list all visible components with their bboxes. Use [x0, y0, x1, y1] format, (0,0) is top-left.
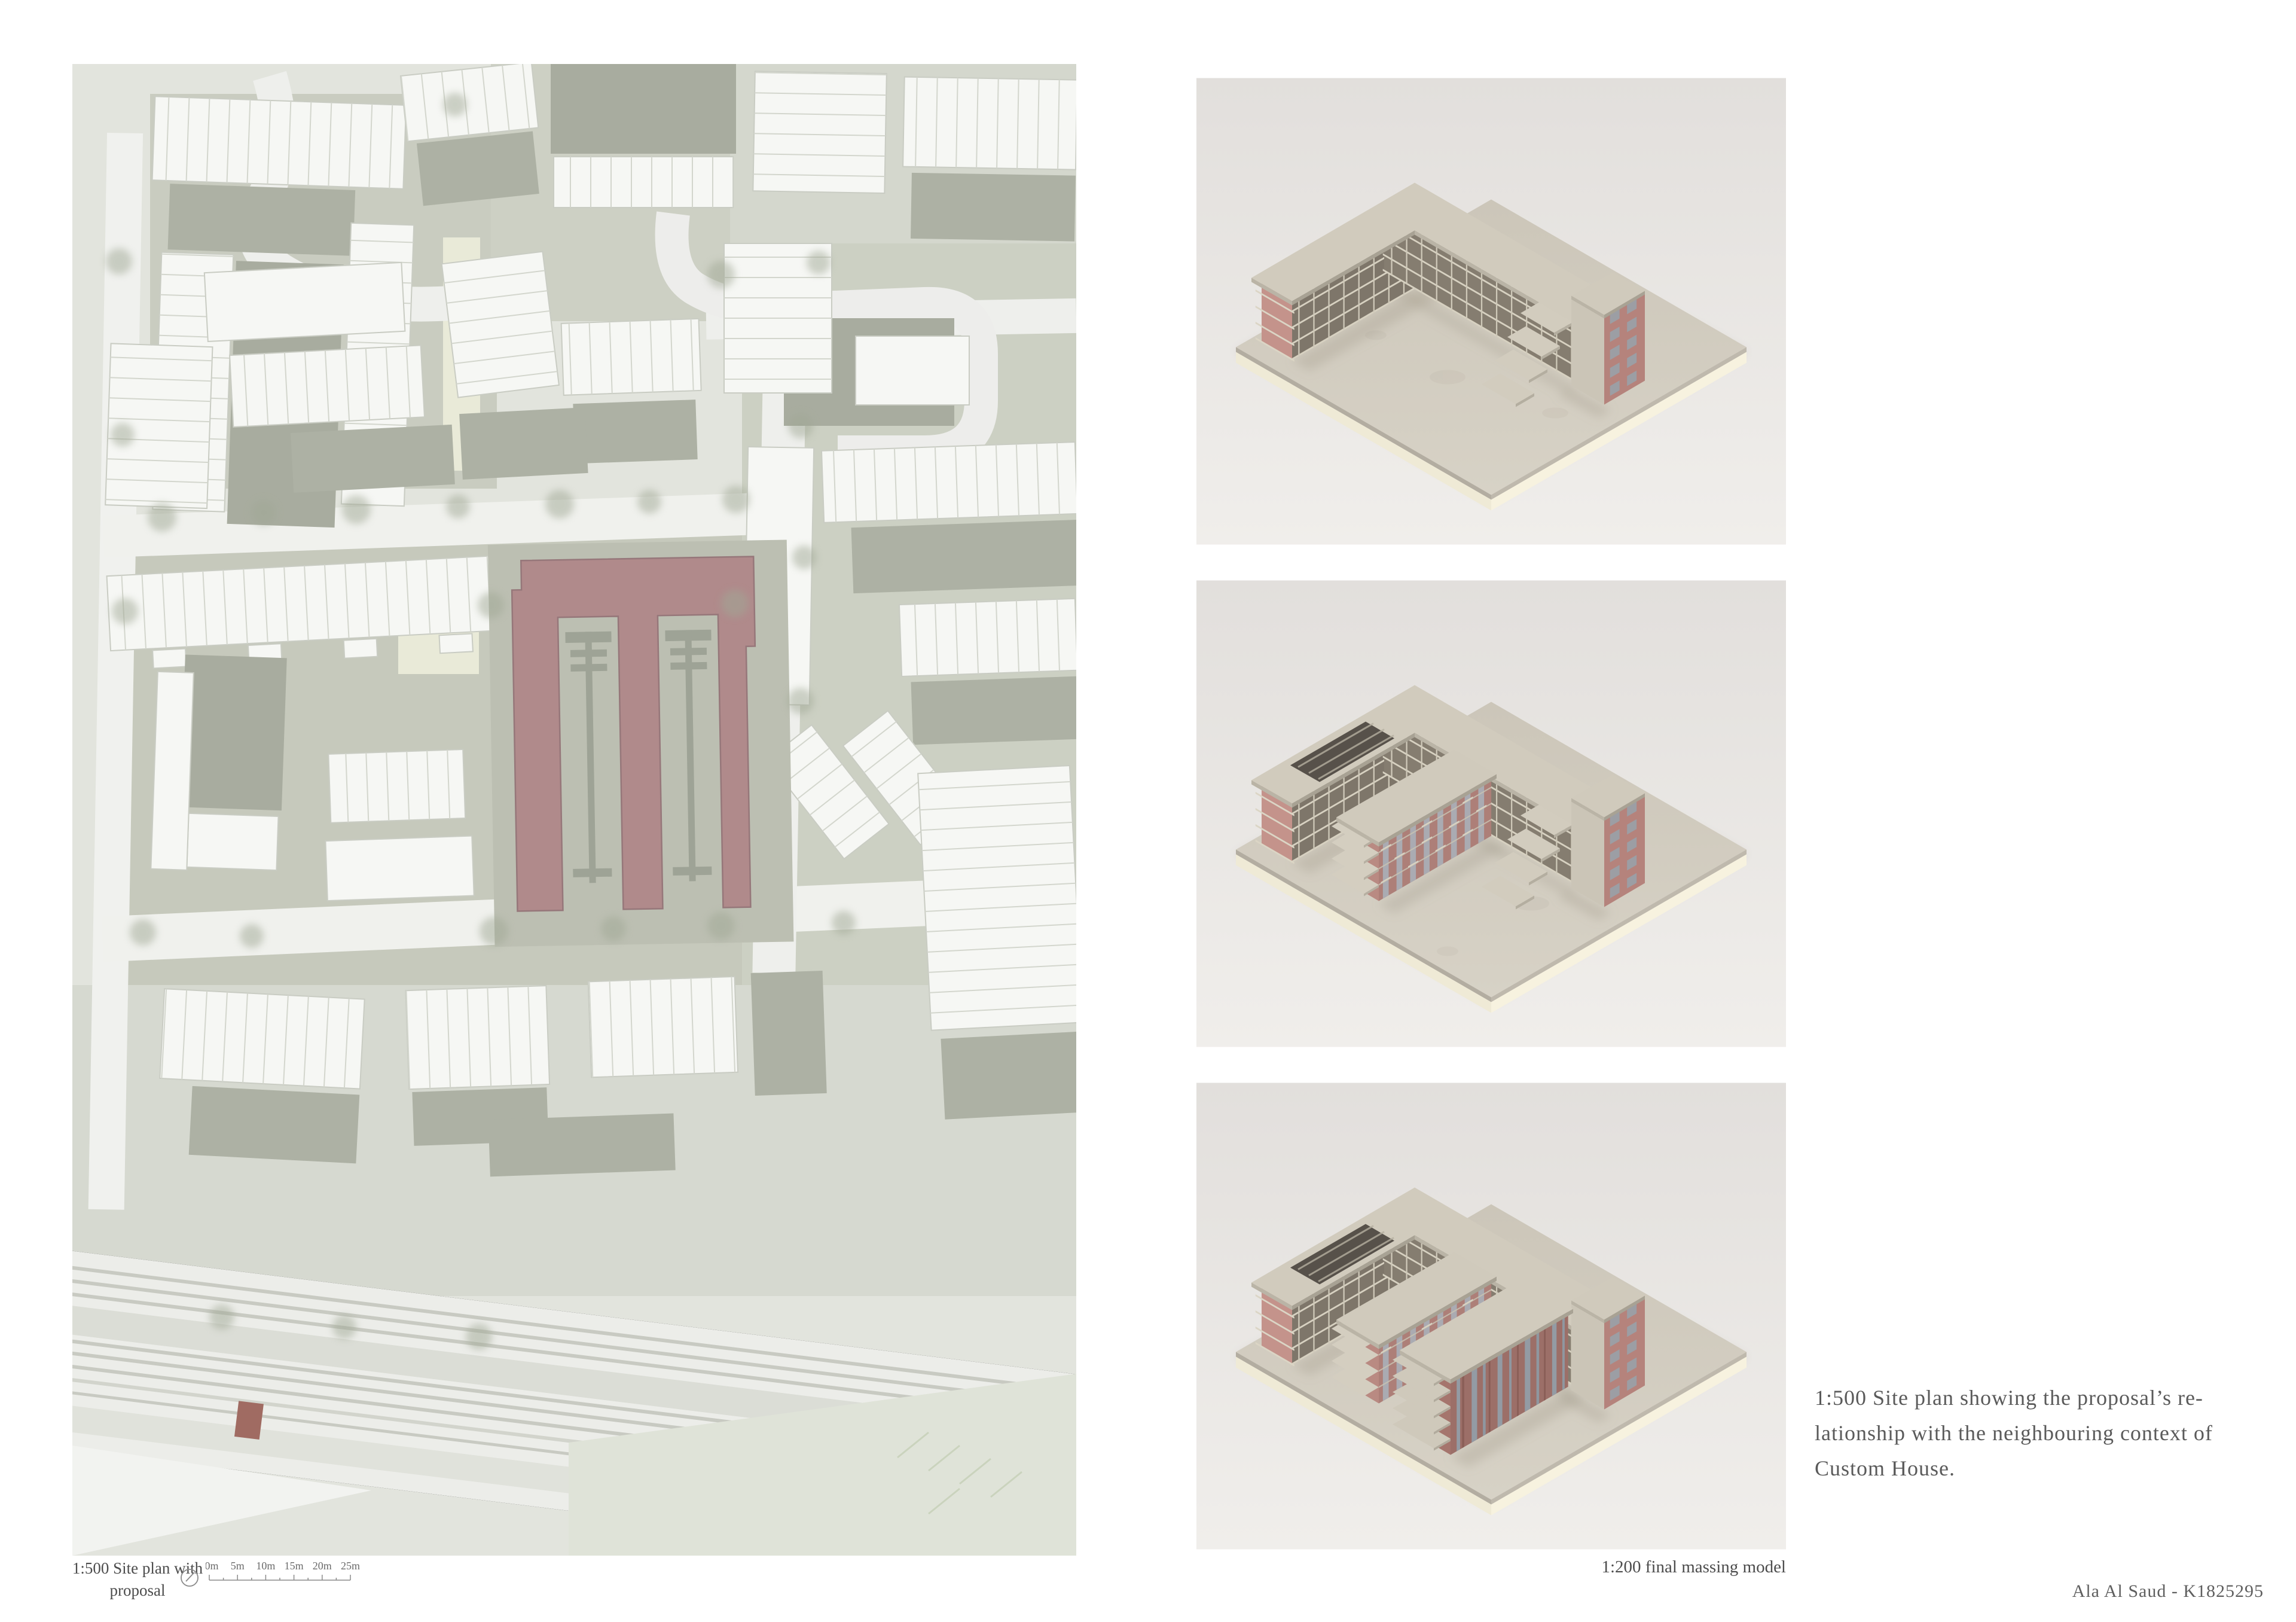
- description-block: 1:500 Site plan showing the proposal’s r…: [1815, 1310, 2281, 1622]
- trackside-red-building: [234, 1401, 264, 1440]
- scale-label-15: 15m: [285, 1560, 304, 1572]
- scale-label-5: 5m: [231, 1560, 245, 1572]
- model-photo-3: [1196, 1083, 1786, 1550]
- tower: [1571, 273, 1645, 405]
- description-paragraph-1: 1:500 Site plan showing the proposal’s r…: [1815, 1380, 2281, 1486]
- portfolio-sheet: 1:500 Site plan with proposal 0m 5m 10m …: [0, 0, 2296, 1622]
- scale-label-25: 25m: [341, 1560, 360, 1572]
- model-photo-1: [1196, 78, 1786, 545]
- author-credit: Ala Al Saud - K1825295: [1794, 1581, 2264, 1602]
- scale-label-0: 0m: [206, 1560, 219, 1572]
- description-paragraph-2: 1:200 final model in series - which port…: [1815, 1619, 2281, 1622]
- model-photo-2: [1196, 580, 1786, 1047]
- scale-label-10: 10m: [256, 1560, 275, 1572]
- site-plan: [72, 64, 1076, 1556]
- scale-label-20: 20m: [313, 1560, 332, 1572]
- north-arrow-icon: [178, 1566, 201, 1590]
- massing-model-caption: 1:200 final massing model: [1196, 1557, 1786, 1577]
- scale-bar: 0m 5m 10m 15m 20m 25m: [206, 1557, 361, 1589]
